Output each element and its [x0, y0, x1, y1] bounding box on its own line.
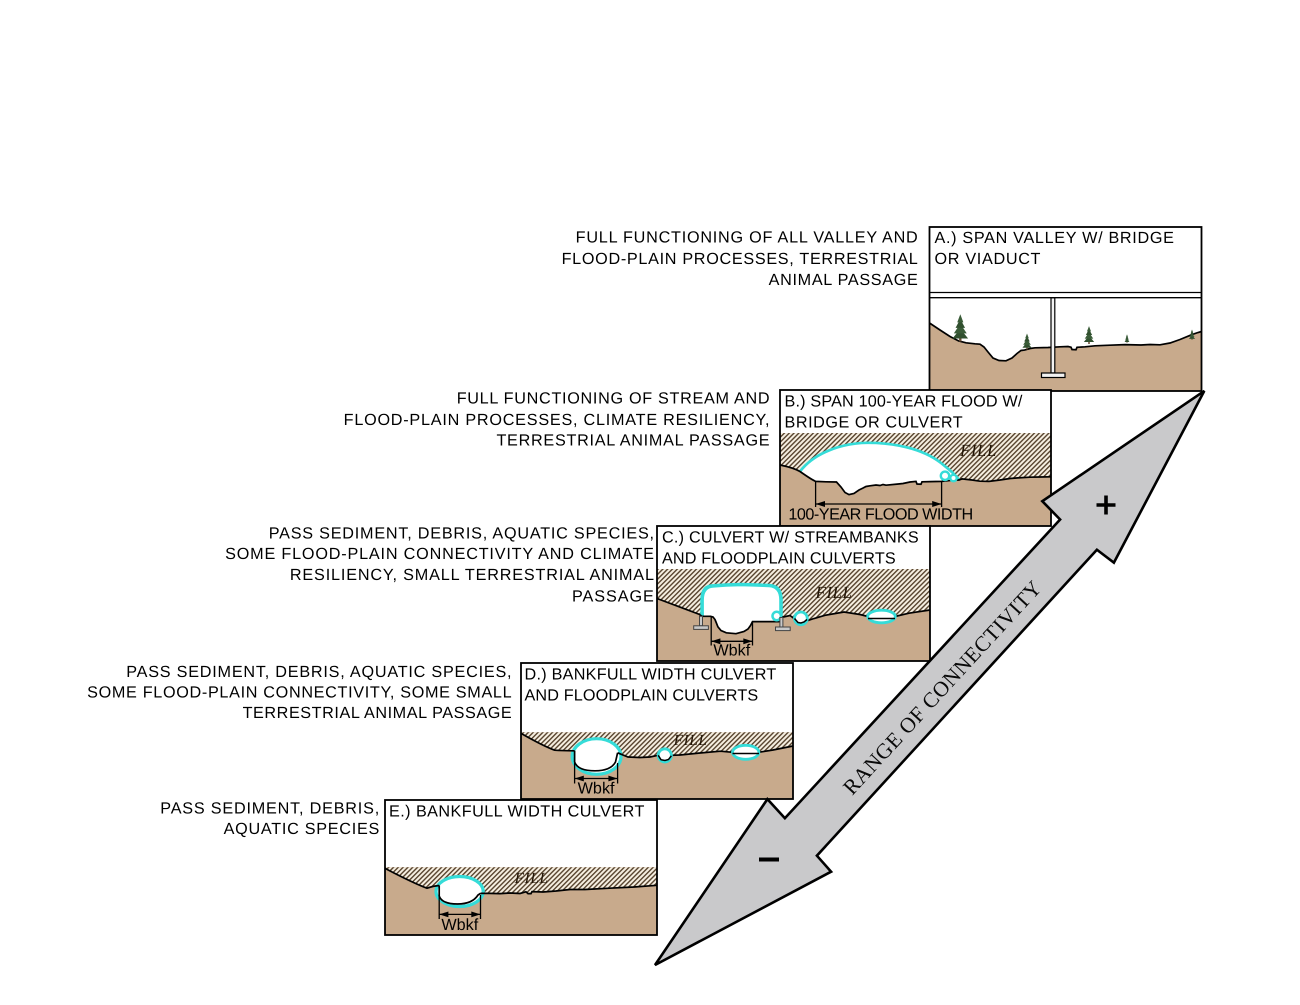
svg-text:RESILIENCY, SMALL TERRESTRIAL: RESILIENCY, SMALL TERRESTRIAL ANIMAL: [290, 566, 655, 584]
svg-text:AND FLOODPLAIN CULVERTS: AND FLOODPLAIN CULVERTS: [662, 549, 896, 567]
svg-text:SOME FLOOD-PLAIN CONNECTIVITY,: SOME FLOOD-PLAIN CONNECTIVITY, SOME SMAL…: [87, 684, 512, 702]
svg-text:FULL FUNCTIONING OF STREAM AND: FULL FUNCTIONING OF STREAM AND: [457, 390, 771, 408]
svg-text:E.) BANKFULL WIDTH CULVERT: E.) BANKFULL WIDTH CULVERT: [389, 802, 645, 820]
svg-text:Wbkf: Wbkf: [713, 642, 750, 660]
svg-text:PASSAGE: PASSAGE: [572, 587, 655, 605]
svg-text:FILL: FILL: [815, 583, 853, 602]
svg-text:FILL: FILL: [959, 441, 997, 460]
svg-text:100-YEAR FLOOD WIDTH: 100-YEAR FLOOD WIDTH: [788, 505, 972, 523]
svg-text:PASS SEDIMENT, DEBRIS,: PASS SEDIMENT, DEBRIS,: [160, 800, 380, 818]
svg-text:FLOOD-PLAIN PROCESSES, TERREST: FLOOD-PLAIN PROCESSES, TERRESTRIAL: [562, 250, 919, 268]
svg-text:TERRESTRIAL ANIMAL PASSAGE: TERRESTRIAL ANIMAL PASSAGE: [243, 704, 513, 722]
svg-text:B.) SPAN 100-YEAR FLOOD W/: B.) SPAN 100-YEAR FLOOD W/: [785, 392, 1023, 410]
svg-text:D.) BANKFULL WIDTH CULVERT: D.) BANKFULL WIDTH CULVERT: [525, 665, 777, 683]
svg-text:Wbkf: Wbkf: [578, 780, 615, 798]
svg-text:AQUATIC SPECIES: AQUATIC SPECIES: [224, 820, 380, 838]
svg-text:A.) SPAN VALLEY W/ BRIDGE: A.) SPAN VALLEY W/ BRIDGE: [935, 229, 1175, 247]
svg-text:AND FLOODPLAIN CULVERTS: AND FLOODPLAIN CULVERTS: [525, 686, 759, 704]
svg-text:FLOOD-PLAIN PROCESSES, CLIMATE: FLOOD-PLAIN PROCESSES, CLIMATE RESILIENC…: [344, 411, 771, 429]
svg-text:PASS SEDIMENT, DEBRIS, AQUATIC: PASS SEDIMENT, DEBRIS, AQUATIC SPECIES,: [126, 663, 512, 681]
svg-text:Wbkf: Wbkf: [441, 916, 478, 934]
svg-text:C.) CULVERT W/ STREAMBANKS: C.) CULVERT W/ STREAMBANKS: [662, 528, 919, 546]
svg-text:OR VIADUCT: OR VIADUCT: [935, 250, 1042, 268]
svg-text:SOME FLOOD-PLAIN CONNECTIVITY: SOME FLOOD-PLAIN CONNECTIVITY AND CLIMAT…: [225, 545, 655, 563]
svg-text:TERRESTRIAL ANIMAL PASSAGE: TERRESTRIAL ANIMAL PASSAGE: [496, 432, 770, 450]
svg-text:PASS SEDIMENT, DEBRIS, AQUATIC: PASS SEDIMENT, DEBRIS, AQUATIC SPECIES,: [269, 525, 655, 543]
svg-text:FILL: FILL: [673, 732, 708, 749]
svg-text:FILL: FILL: [514, 870, 549, 887]
svg-text:BRIDGE OR CULVERT: BRIDGE OR CULVERT: [785, 414, 964, 432]
svg-text:ANIMAL PASSAGE: ANIMAL PASSAGE: [769, 271, 919, 289]
svg-text:FULL FUNCTIONING OF ALL VALLEY: FULL FUNCTIONING OF ALL VALLEY AND: [576, 229, 919, 247]
